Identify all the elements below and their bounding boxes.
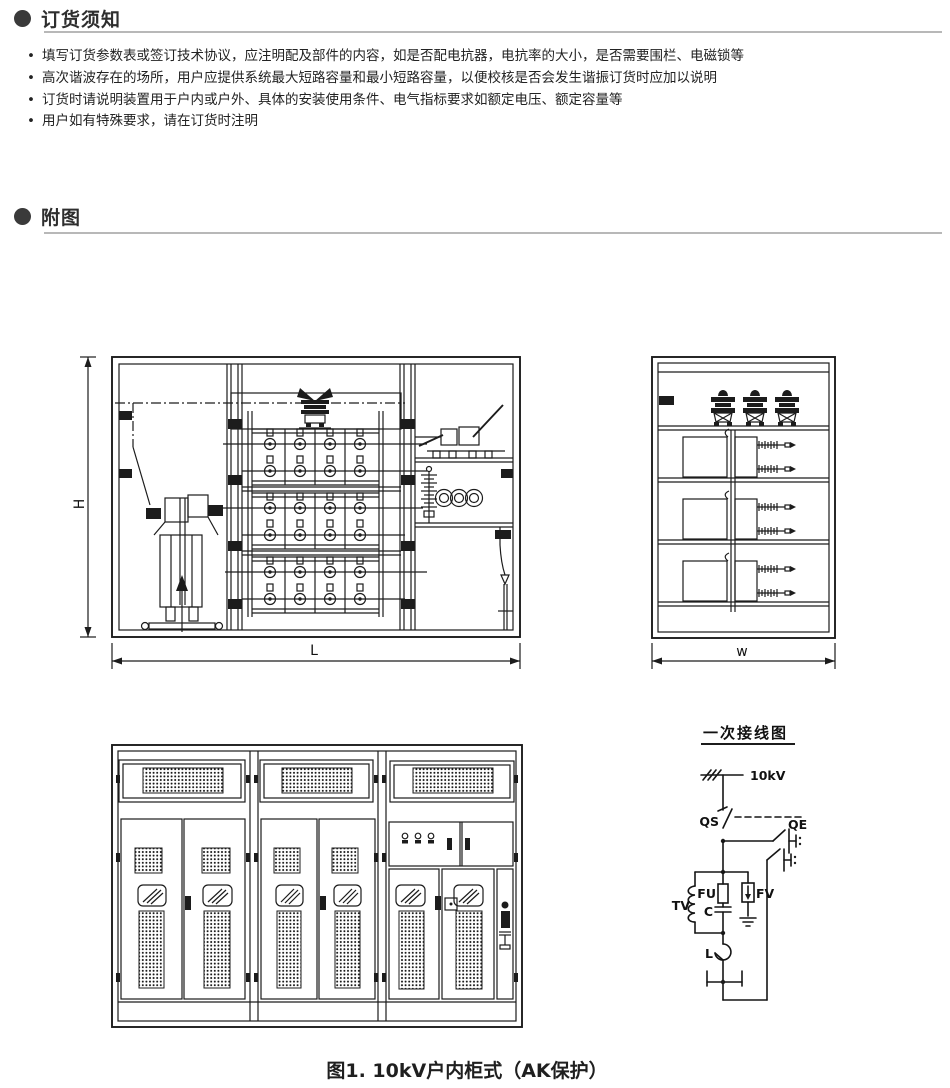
figure-caption: 图1. 10kV户内柜式（AK保护）: [0, 1056, 950, 1083]
post-insulator: [775, 390, 799, 426]
bullet-marker: •: [27, 111, 35, 133]
panel-latch[interactable]: [465, 838, 470, 850]
dim-label-w: w: [736, 644, 747, 660]
list-item: •高次谐波存在的场所，用户应提供系统最大短路容量和最小短路容量，以便校核是否会发…: [27, 68, 744, 90]
disconnector-qs: QS QE: [699, 775, 807, 832]
interlock-handle[interactable]: [499, 902, 511, 950]
surge-arrester: [421, 467, 437, 524]
indicator-lamp: [428, 833, 434, 843]
section-title: 附图: [41, 203, 81, 230]
note-text: 用户如有特殊要求，请在订货时注明: [42, 111, 258, 133]
catalog-page: 订货须知 •填写订货参数表或签订技术协议，应注明配及部件的内容，如是否配电抗器，…: [0, 0, 950, 1088]
qs-label: QS: [699, 814, 719, 829]
bullet-marker: •: [27, 90, 35, 112]
reactor-branch: L: [705, 860, 767, 1000]
inspection-window: [334, 885, 361, 906]
wall-standoff-insulators: [119, 411, 513, 609]
primary-wiring-diagram: 一次接线图 10kV QS QE: [665, 710, 900, 1030]
indicator-lamp: [402, 833, 408, 843]
capacitor-bay: [683, 429, 796, 477]
fv-label: FV: [756, 886, 775, 901]
front-elevation-drawing: [105, 735, 535, 1035]
current-transformers: [436, 490, 483, 507]
bullet-marker: •: [27, 46, 35, 68]
reactor-coil: [715, 944, 731, 960]
control-panel: [389, 822, 513, 866]
dimension-height: H: [72, 357, 96, 637]
note-text: 高次谐波存在的场所，用户应提供系统最大短路容量和最小短路容量，以便校核是否会发生…: [42, 68, 717, 90]
section-header-figures: 附图: [14, 203, 81, 230]
filter-branch: TV FU C FV: [672, 841, 775, 935]
section-bullet-icon: [14, 10, 31, 27]
series-reactor: [142, 495, 224, 632]
ordering-notes-list: •填写订货参数表或签订技术协议，应注明配及部件的内容，如是否配电抗器，电抗率的大…: [27, 46, 744, 133]
incoming-source: 10kV: [701, 768, 786, 783]
tv-label: TV: [672, 898, 691, 913]
cabinet-section-3: [389, 761, 514, 999]
indicator-lamp: [415, 833, 421, 843]
cabinet-section-1: [119, 760, 245, 999]
roof-insulators: [711, 390, 799, 426]
side-elevation-drawing: w: [645, 345, 845, 680]
l-label: L: [705, 946, 713, 961]
panel-latch[interactable]: [447, 838, 452, 850]
c-label: C: [704, 904, 713, 919]
dim-label-h: H: [72, 499, 88, 510]
vent-grille: [413, 768, 493, 793]
side-strip: [497, 869, 513, 999]
section-divider: [44, 31, 942, 33]
cable-drop: [495, 527, 513, 630]
dim-label-l: L: [310, 643, 318, 659]
cabinet-section-2: [260, 760, 375, 999]
inspection-window: [138, 885, 166, 906]
door-handle[interactable]: [435, 896, 441, 910]
section-bullet-icon: [14, 208, 31, 225]
section-title: 订货须知: [41, 5, 121, 32]
capacitor-rack: [223, 393, 427, 617]
fu-label: FU: [697, 886, 716, 901]
schematic-title: 一次接线图: [703, 724, 788, 742]
busbar-dashdot-line: [115, 403, 405, 505]
section-divider: [44, 232, 942, 234]
inspection-window: [454, 885, 483, 906]
list-item: •用户如有特殊要求，请在订货时注明: [27, 111, 744, 133]
roof-bushing-insulator: [297, 388, 333, 428]
fuse-symbol: [718, 884, 728, 903]
door-handle[interactable]: [320, 896, 326, 910]
inspection-window: [276, 885, 303, 906]
earthing-switch-qe: [721, 829, 801, 871]
disconnect-switch: [415, 405, 505, 458]
post-insulator: [711, 390, 735, 426]
bullet-marker: •: [27, 68, 35, 90]
capacitor-bay: [683, 553, 796, 601]
qe-label: QE: [788, 817, 807, 832]
list-item: •订货时请说明装置用于户内或户外、具体的安装使用条件、电气指标要求如额定电压、额…: [27, 90, 744, 112]
post-insulator: [743, 390, 767, 426]
capacitor-bay: [683, 491, 796, 539]
vent-grille: [282, 768, 352, 793]
vent-grille: [143, 768, 223, 793]
note-text: 填写订货参数表或签订技术协议，应注明配及部件的内容，如是否配电抗器，电抗率的大小…: [42, 46, 744, 68]
section-header-ordering-notice: 订货须知: [14, 5, 121, 32]
interior-elevation-drawing: H L: [75, 345, 545, 680]
voltage-label: 10kV: [750, 768, 786, 783]
list-item: •填写订货参数表或签订技术协议，应注明配及部件的内容，如是否配电抗器，电抗率的大…: [27, 46, 744, 68]
dimension-length: L: [112, 643, 520, 669]
inspection-window: [396, 885, 425, 906]
inspection-window: [203, 885, 232, 906]
dimension-width: w: [652, 643, 835, 669]
note-text: 订货时请说明装置用于户内或户外、具体的安装使用条件、电气指标要求如额定电压、额定…: [42, 90, 623, 112]
door-handle[interactable]: [185, 896, 191, 910]
